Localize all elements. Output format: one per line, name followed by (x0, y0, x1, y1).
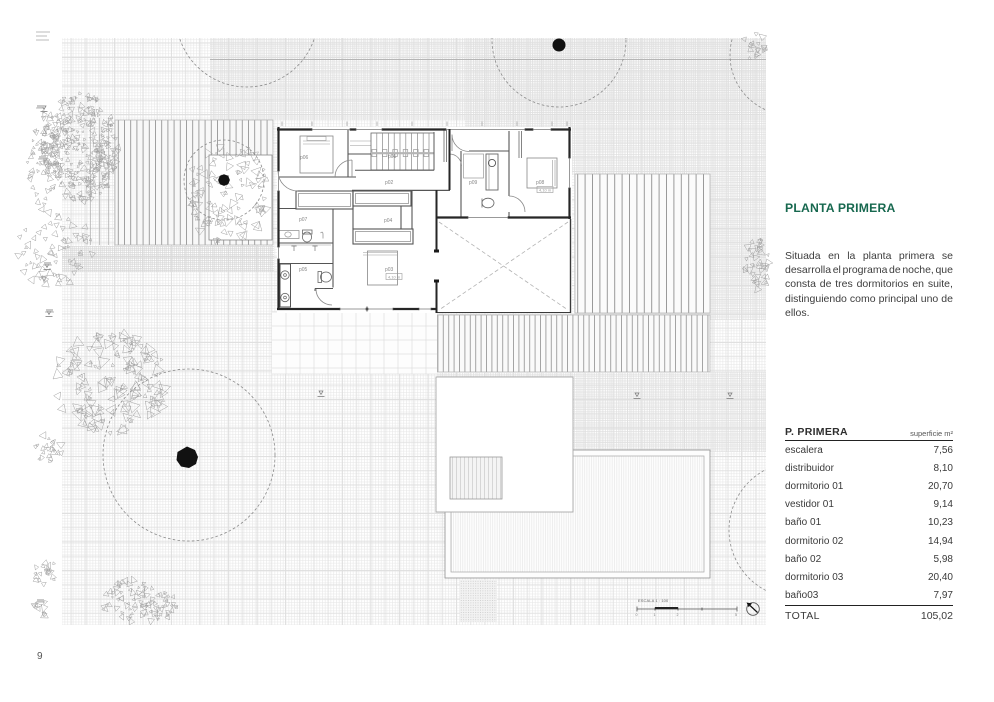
svg-text:p06: p06 (300, 155, 309, 161)
svg-text:p09: p09 (469, 180, 478, 186)
svg-text:2: 2 (677, 613, 679, 617)
svg-text:4,10 m: 4,10 m (539, 187, 552, 192)
svg-text:4,10 m: 4,10 m (388, 274, 401, 279)
svg-text:5: 5 (735, 613, 737, 617)
svg-text:0: 0 (636, 613, 638, 617)
svg-text:p08: p08 (536, 180, 545, 186)
svg-text:9: 9 (37, 651, 43, 662)
svg-text:p05: p05 (299, 267, 308, 273)
svg-text:p04: p04 (384, 218, 393, 224)
svg-text:1: 1 (654, 613, 656, 617)
svg-text:p03: p03 (385, 267, 394, 273)
svg-text:p02: p02 (385, 180, 394, 186)
svg-text:p07: p07 (299, 217, 308, 223)
svg-text:p01: p01 (388, 154, 397, 160)
svg-text:ESCALA 1 : 100: ESCALA 1 : 100 (638, 598, 669, 603)
